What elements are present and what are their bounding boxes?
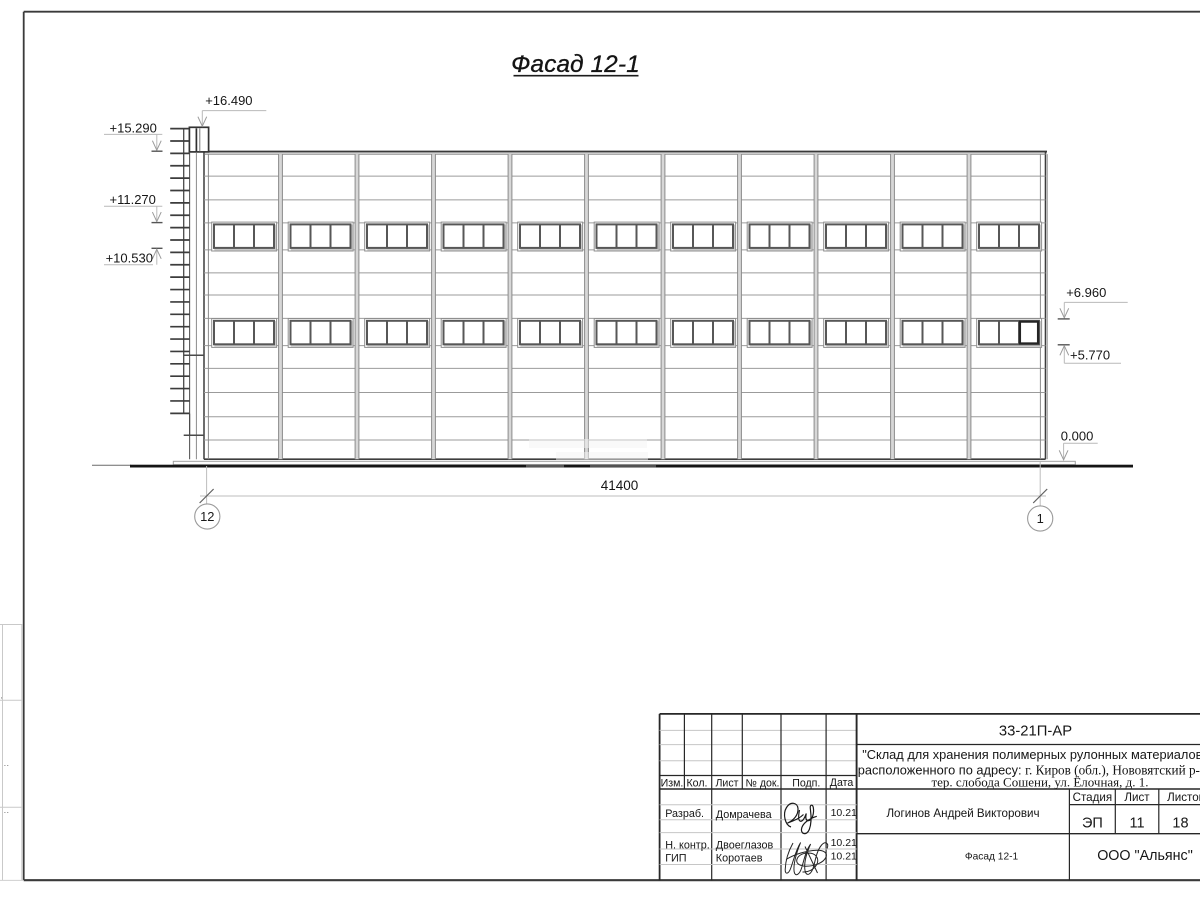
svg-text:·: · (0, 697, 6, 700)
svg-text:10.21: 10.21 (831, 851, 857, 863)
svg-text:ЭП: ЭП (1082, 816, 1103, 832)
svg-text:Фасад 12-1: Фасад 12-1 (965, 851, 1019, 862)
svg-text:41400: 41400 (601, 478, 639, 493)
svg-text:10.21: 10.21 (831, 807, 857, 819)
svg-text:+16.490: +16.490 (205, 93, 252, 108)
svg-text:ГИП: ГИП (665, 852, 686, 864)
svg-text:Стадия: Стадия (1073, 791, 1113, 804)
svg-text:+5.770: +5.770 (1070, 347, 1110, 362)
svg-text:+11.270: +11.270 (110, 192, 156, 207)
svg-text:Разраб.: Разраб. (665, 808, 704, 820)
svg-text:Двоеглазов: Двоеглазов (716, 840, 774, 852)
svg-text:№ док.: № док. (746, 778, 780, 790)
svg-text:12: 12 (200, 509, 214, 524)
svg-text:18: 18 (1172, 816, 1188, 832)
svg-text:10.21: 10.21 (831, 837, 857, 849)
svg-text:Коротаев: Коротаев (716, 853, 763, 865)
svg-text:Н. контр.: Н. контр. (665, 840, 710, 852)
svg-text:33-21П-АР: 33-21П-АР (999, 724, 1072, 740)
svg-text:Подп.: Подп. (792, 778, 820, 790)
svg-text:+6.960: +6.960 (1066, 285, 1106, 300)
svg-text:Кол.: Кол. (687, 778, 708, 790)
svg-text:Домрачева: Домрачева (716, 809, 772, 821)
svg-text:··: ·· (4, 760, 10, 770)
svg-text:0.000: 0.000 (1061, 428, 1094, 443)
svg-text:тер. слобода Сошени, ул. Ёлочн: тер. слобода Сошени, ул. Ёлочная, д. 1. (931, 774, 1148, 789)
svg-text:Лист: Лист (715, 778, 738, 790)
svg-text:Листов: Листов (1167, 791, 1200, 804)
svg-text:1: 1 (1037, 511, 1044, 526)
svg-text:Логинов Андрей Викторович: Логинов Андрей Викторович (886, 807, 1039, 820)
svg-text:Лист: Лист (1124, 791, 1150, 804)
svg-text:Изм.: Изм. (661, 778, 684, 790)
svg-text:Дата: Дата (830, 777, 854, 789)
svg-text:··: ·· (4, 807, 10, 817)
svg-text:Фасад 12-1: Фасад 12-1 (511, 51, 640, 78)
svg-text:ООО "Альянс": ООО "Альянс" (1097, 848, 1193, 864)
svg-text:+10.530: +10.530 (106, 251, 153, 266)
svg-text:"Склад для хранения полимерных: "Склад для хранения полимерных рулонных … (862, 747, 1200, 762)
svg-text:+15.290: +15.290 (110, 120, 157, 135)
svg-text:11: 11 (1129, 816, 1144, 832)
